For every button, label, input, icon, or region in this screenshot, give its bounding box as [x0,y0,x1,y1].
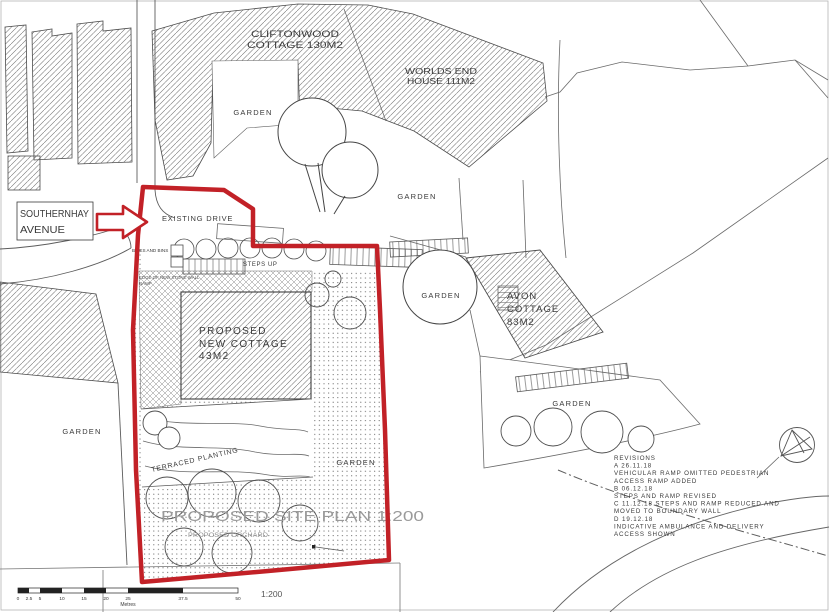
steps-band [183,259,245,274]
garden-label: GARDEN [62,427,101,436]
building-block [5,25,28,153]
building-block [77,21,132,164]
cliftonwood-label: CLIFTONWOOD [251,29,340,39]
proposed-orchard-label: PROPOSED ORCHARD [188,532,268,539]
garden-label: GARDEN [397,192,436,201]
site-plan-drawing: 0 2.5 5 10 15 20 25 37.5 50 Metres 1:200… [0,0,830,612]
revision-line: C 11.12.18 STEPS AND RAMP REDUCED AND [614,501,780,508]
worlds-end-label: HOUSE 111M2 [407,77,476,86]
shrub [196,239,216,259]
southernhay-callout: SOUTHERNHAY AVENUE [17,202,147,240]
cliftonwood-label: COTTAGE 130M2 [247,40,343,50]
tree-canopy [403,250,477,324]
revision-line: B 06.12.18 [614,485,653,492]
building-block [32,29,72,160]
scale-tick: 2.5 [26,596,33,602]
southernhay-label: SOUTHERNHAY [20,208,89,220]
garden-label: GARDEN [421,291,460,300]
steps-up-label: STEPS UP [243,262,277,268]
scale-units-label: Metres [120,602,136,608]
avon-cottage-label: COTTAGE [507,304,559,315]
scale-tick: 10 [59,596,65,602]
revision-line: A 26.11.18 [614,463,652,470]
scale-tick: 37.5 [178,596,188,602]
scale-tick: 0 [17,596,20,602]
drawing-title: PROPOSED SITE PLAN 1:200 [161,509,424,525]
proposed-cottage-label: PROPOSED [199,326,267,337]
proposed-cottage-label: 43M2 [199,351,230,362]
revision-line: INDICATIVE AMBULANCE AND DELIVERY [614,523,765,530]
stone-wall-label: RAMP [139,281,152,286]
tree-canopy [501,416,531,446]
site-plan-svg: 0 2.5 5 10 15 20 25 37.5 50 Metres 1:200… [0,0,830,612]
garden-label: GARDEN [233,108,272,117]
shrub [218,238,238,258]
tree-canopy [534,408,572,446]
tree-canopy [628,426,654,452]
revision-line: D 19.12.18 [614,516,653,523]
tree-canopy [322,142,378,198]
avon-cottage-label: 83M2 [507,317,535,328]
revision-line: STEPS AND RAMP REVISED [614,493,717,500]
scale-tick: 50 [235,596,241,602]
bin-store [171,257,183,267]
southernhay-label: AVENUE [20,224,65,236]
tree-canopy [581,411,623,453]
existing-drive-label: EXISTING DRIVE [162,214,233,223]
proposed-cottage-label: NEW COTTAGE [199,339,288,350]
scale-tick: 15 [81,596,87,602]
revision-line: MOVED TO BOUNDARY WALL [614,508,721,515]
worlds-end-label: WORLDS END [405,67,477,76]
tree-canopy [158,427,180,449]
stone-wall-label: EDGE OF NEW STONE WALL [139,275,200,280]
revision-line: ACCESS SHOWN [614,531,676,538]
building-block [8,156,40,190]
revision-line: REVISIONS [614,455,656,462]
bin-store [171,245,183,256]
avon-cottage-label: AVON [507,291,537,302]
scale-tick: 20 [103,596,109,602]
garden-label: GARDEN [336,458,375,467]
revision-line: ACCESS RAMP ADDED [614,478,697,485]
scale-ratio-label: 1:200 [261,589,283,599]
garden-label: GARDEN [552,399,591,408]
revision-line: VEHICULAR RAMP OMITTED PEDESTRIAN [614,470,769,477]
scale-tick: 5 [39,596,42,602]
shrub [284,239,304,259]
